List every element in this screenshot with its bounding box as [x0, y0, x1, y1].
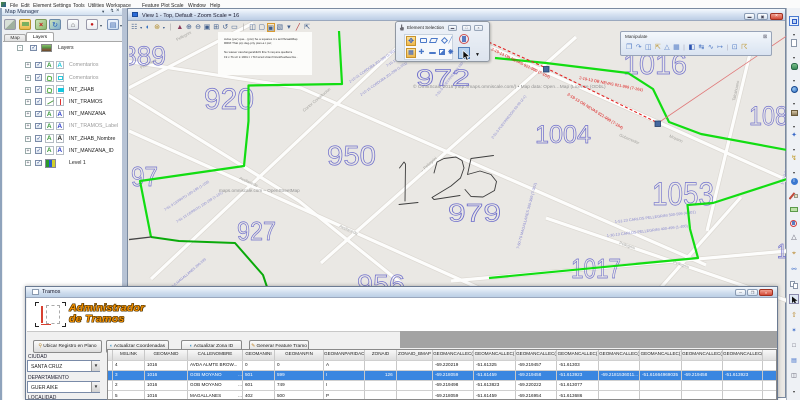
svg-text:Gobernador: Gobernador [619, 132, 641, 145]
svg-text:972: 972 [416, 65, 470, 91]
svg-text:1004: 1004 [535, 121, 591, 149]
svg-text:889: 889 [129, 41, 166, 71]
svg-text:920: 920 [204, 83, 254, 116]
svg-text:2-51-5 PUEYRREDON 50-99 (2-1): 2-51-5 PUEYRREDON 50-99 (2-1) [491, 95, 527, 140]
svg-text:1053: 1053 [652, 176, 714, 212]
svg-text:979: 979 [448, 200, 501, 228]
svg-text:1-51-23 CARLOS PELLEGRINI 500-: 1-51-23 CARLOS PELLEGRINI 500-599 (4-501… [615, 210, 697, 224]
svg-text:950: 950 [327, 140, 376, 171]
svg-text:927: 927 [237, 216, 276, 246]
svg-text:140: 140 [777, 241, 786, 263]
svg-text:1086: 1086 [749, 101, 786, 131]
svg-text:7-60-79 MAGALLANES 300-399 (7-: 7-60-79 MAGALLANES 300-399 (7-301) [516, 182, 538, 250]
svg-text:97: 97 [131, 161, 158, 192]
svg-text:maps.omniscale.com – OpenStree: maps.omniscale.com – OpenStreetMap [219, 188, 300, 193]
svg-text:Pellegrini: Pellegrini [619, 240, 636, 250]
